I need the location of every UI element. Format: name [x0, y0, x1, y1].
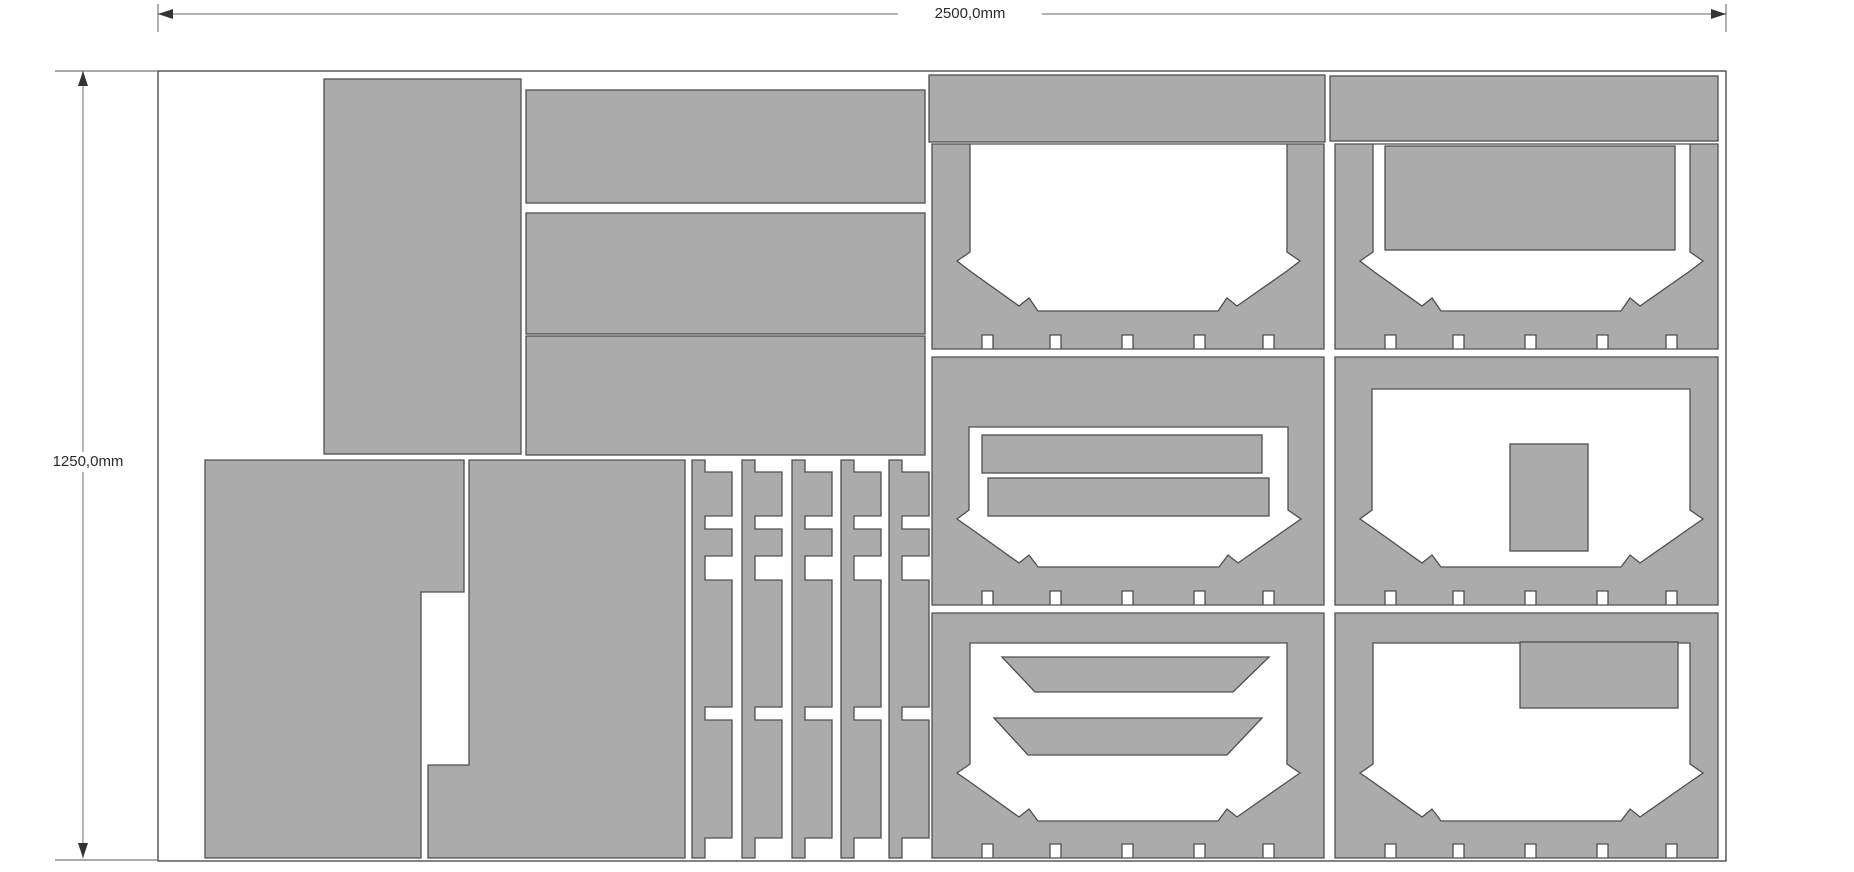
part-trapezoid-bar-1[interactable] [1002, 657, 1269, 692]
nesting-canvas: 2500,0mm 1250,0mm [0, 0, 1854, 872]
part-tall-rectangle[interactable] [324, 79, 521, 454]
part-comb-strip-1[interactable] [692, 460, 732, 858]
part-insert-block-mid-right[interactable] [1510, 444, 1588, 551]
arrow-right-icon [1711, 9, 1726, 19]
part-insert-block-bottom-right[interactable] [1520, 642, 1678, 708]
part-wide-rectangle-1[interactable] [526, 90, 925, 203]
part-filler-strip-left[interactable] [929, 75, 1325, 142]
sheet-height-label: 1250,0mm [38, 452, 138, 472]
part-comb-strip-4[interactable] [841, 460, 881, 858]
part-insert-top-right[interactable] [1385, 146, 1675, 250]
arrow-down-icon [78, 843, 88, 858]
layout-drawing [0, 0, 1854, 872]
part-comb-strip-3[interactable] [792, 460, 832, 858]
part-wide-rectangle-3[interactable] [526, 336, 925, 455]
part-insert-bar-2[interactable] [988, 478, 1269, 516]
arrow-up-icon [78, 71, 88, 86]
part-tub-panel-top-left[interactable] [932, 144, 1324, 349]
part-insert-bar-1[interactable] [982, 435, 1262, 473]
part-comb-strip-5[interactable] [889, 460, 929, 858]
sheet-width-label: 2500,0mm [898, 4, 1042, 24]
part-wide-rectangle-2[interactable] [526, 213, 925, 334]
part-filler-strip-right[interactable] [1330, 76, 1718, 141]
part-l-panel-left[interactable] [205, 460, 464, 858]
arrow-left-icon [158, 9, 173, 19]
part-comb-strip-2[interactable] [742, 460, 782, 858]
part-l-panel-right[interactable] [428, 460, 685, 858]
part-trapezoid-bar-2[interactable] [994, 718, 1262, 755]
